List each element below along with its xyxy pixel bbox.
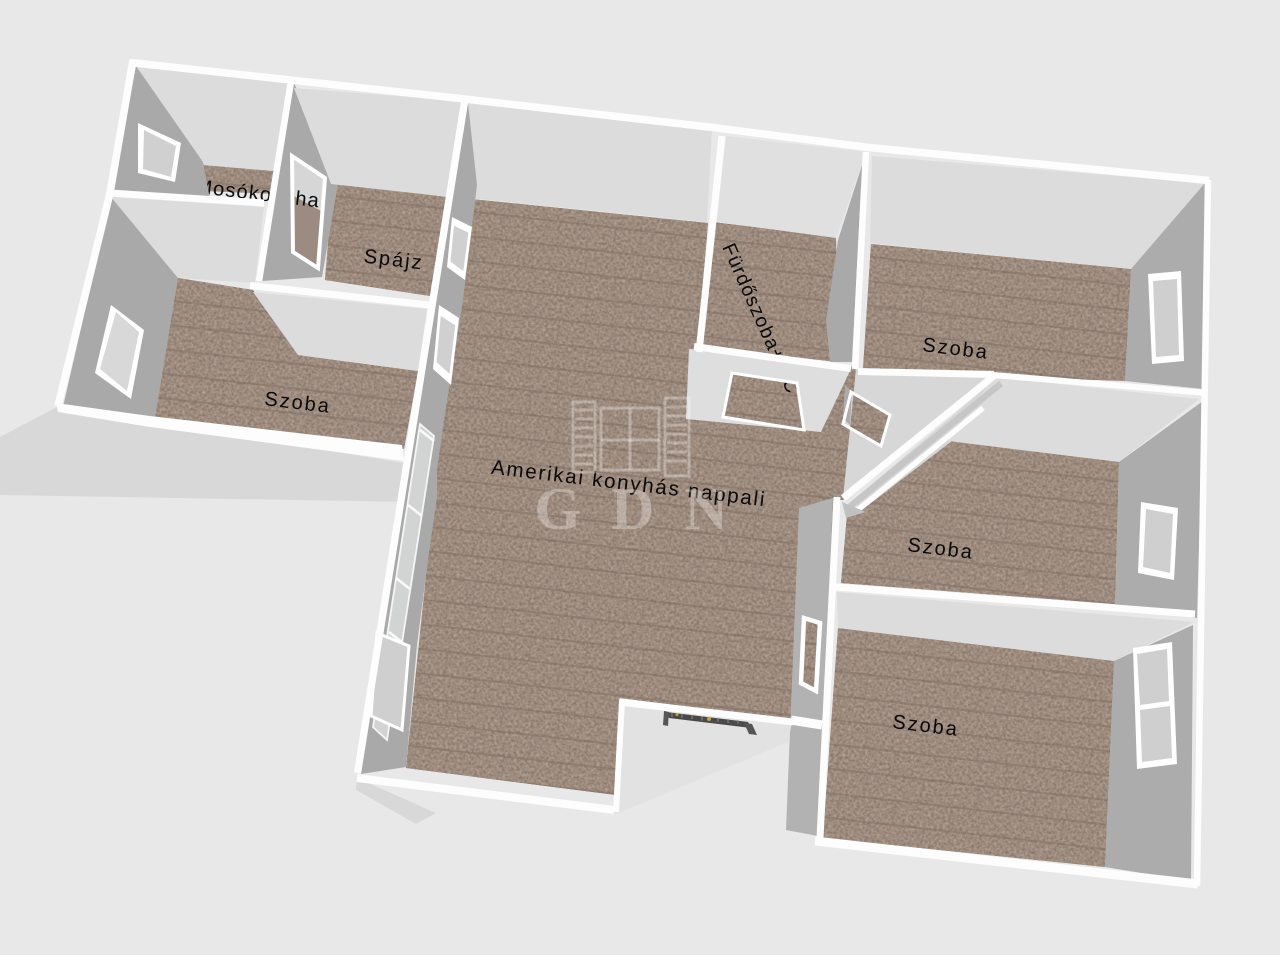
svg-text:GDN: GDN [534, 476, 757, 542]
